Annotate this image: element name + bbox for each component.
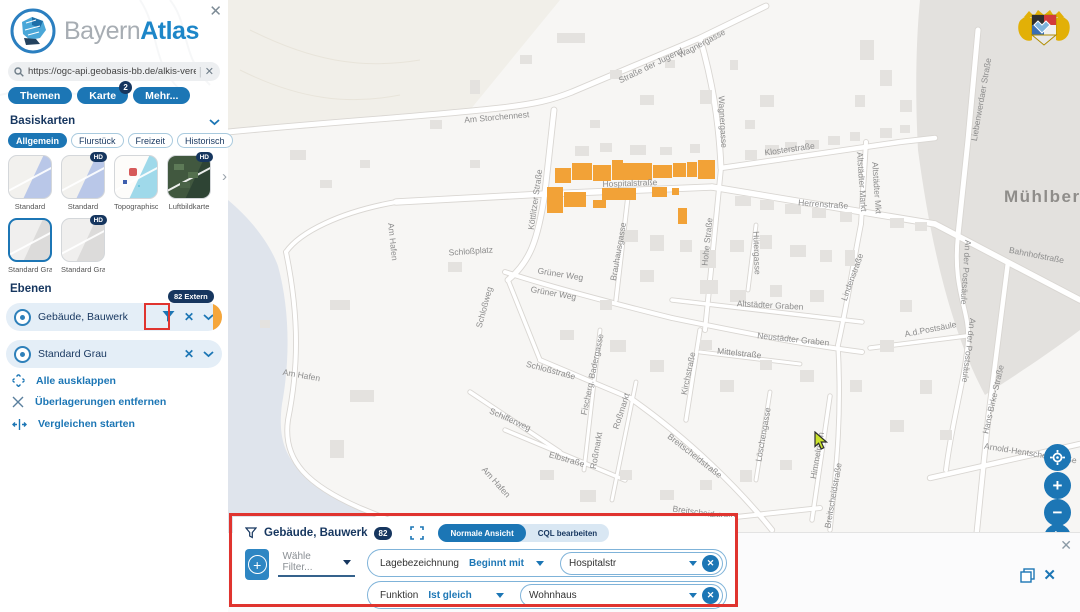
filter-value-input[interactable]: Wohnhaus ✕ (520, 584, 723, 607)
basemap-filter-historisch[interactable]: Historisch (177, 133, 233, 148)
basemap-filter-allgemein[interactable]: Allgemein (8, 133, 67, 148)
layer-drag-handle[interactable] (213, 304, 222, 330)
thumb-label: Luftbildkarte (167, 202, 211, 211)
basemap-thumb-standard[interactable]: Standard (8, 155, 52, 211)
expand-all-icon (12, 374, 25, 387)
pill-label: Historisch (185, 136, 225, 146)
extern-count-badge: 82 Extern (168, 290, 214, 303)
bayernatlas-window: Am StorchennestStraße der JugendWagnerga… (0, 0, 1080, 612)
operator-dropdown[interactable]: Beginnt mit (469, 558, 524, 569)
bavaria-coat-of-arms (1016, 7, 1072, 51)
thumb-label: Standard (8, 202, 52, 211)
thumb-label: Standard Grau (61, 265, 105, 274)
basemap-filter-flurstueck[interactable]: Flurstück (71, 133, 124, 148)
chevron-down-icon (343, 560, 351, 565)
layer-label: Standard Grau (38, 348, 175, 360)
chevron-down-icon[interactable] (689, 561, 697, 566)
basemap-thumb-standard-hd[interactable]: HD Standard (61, 155, 105, 211)
layer-filter-icon[interactable] (162, 310, 175, 324)
filter-panel: Gebäude, Bauwerk 82 Normale Ansicht CQL … (233, 517, 735, 605)
toggle-normale-ansicht[interactable]: Normale Ansicht (438, 524, 525, 542)
clear-search-icon[interactable]: ✕ (205, 65, 214, 78)
chevron-down-icon[interactable] (496, 593, 504, 598)
filter-value: Hospitalstr (569, 558, 616, 569)
geolocate-button[interactable] (1044, 444, 1071, 471)
operator-dropdown[interactable]: Ist gleich (428, 590, 471, 601)
thumbnails-next-icon[interactable]: › (222, 168, 227, 185)
sidebar: ✕ BayernAtlas | ✕ Themen (0, 0, 228, 612)
layer-row-standard-grau: Standard Grau ✕ (6, 340, 222, 368)
toggle-cql-bearbeiten[interactable]: CQL bearbeiten (526, 524, 609, 542)
plus-icon: + (253, 558, 261, 572)
tab-karte-badge: 2 (119, 81, 132, 94)
pill-label: Allgemein (16, 136, 59, 146)
compare-arrows-icon (12, 419, 27, 430)
close-icon (12, 396, 24, 408)
add-filter-button[interactable]: + (245, 549, 269, 580)
svg-text:Hütergasse: Hütergasse (751, 231, 763, 275)
minus-icon: − (1053, 503, 1063, 523)
basiskarten-heading: Basiskarten (10, 115, 75, 127)
basemap-thumb-standard-grau[interactable]: Standard Grau (8, 218, 52, 274)
filter-value-input[interactable]: Hospitalstr ✕ (560, 552, 723, 575)
layer-row-gebaeude-bauwerk: Gebäude, Bauwerk ✕ (6, 303, 222, 331)
app-title: BayernAtlas (64, 17, 199, 46)
filter-row-funktion: Funktion Ist gleich Wohnhaus ✕ (367, 581, 727, 609)
bayernatlas-logo (10, 8, 56, 54)
choose-filter-placeholder: Wähle Filter... (282, 551, 343, 573)
chevron-up-icon[interactable] (209, 118, 220, 126)
chevron-down-icon[interactable] (536, 561, 544, 566)
thumb-label: Standard Grau (8, 265, 52, 274)
tab-themen[interactable]: Themen (8, 87, 72, 104)
hd-badge: HD (196, 152, 213, 162)
view-toggle: Normale Ansicht CQL bearbeiten (438, 524, 609, 542)
chevron-down-icon[interactable] (689, 593, 697, 598)
hd-badge: HD (90, 152, 107, 162)
search-input[interactable] (28, 66, 196, 77)
ebenen-heading: Ebenen (10, 283, 52, 295)
filter-field-label: Funktion (380, 590, 418, 601)
bottom-bar-close-icon[interactable]: ✕ (1060, 537, 1072, 554)
tab-label: Mehr... (145, 90, 178, 102)
filter-panel-title: Gebäude, Bauwerk (264, 527, 368, 539)
remove-filter-button[interactable]: ✕ (702, 555, 719, 572)
zoom-out-button[interactable]: − (1044, 499, 1071, 526)
svg-text:Hospitalstraße: Hospitalstraße (602, 177, 657, 189)
pill-label: Freizeit (136, 136, 166, 146)
start-compare-link[interactable]: Vergleichen starten (12, 418, 135, 430)
tab-karte[interactable]: Karte 2 (77, 87, 128, 104)
place-label-muehlberg: Mühlberg (1004, 187, 1080, 206)
result-count-badge: 82 (374, 527, 393, 540)
basemap-thumb-standard-grau-hd[interactable]: HD Standard Grau (61, 218, 105, 274)
plus-icon: + (1053, 476, 1063, 496)
basemap-thumb-topographisch[interactable]: Topographisch (114, 155, 158, 211)
link-label: Überlagerungen entfernen (35, 396, 166, 408)
zoom-in-button[interactable]: + (1044, 472, 1071, 499)
filter-funnel-icon (245, 527, 257, 539)
filter-value: Wohnhaus (529, 590, 577, 601)
link-label: Alle ausklappen (36, 375, 116, 387)
layer-visibility-icon[interactable] (14, 346, 31, 363)
chevron-down-icon[interactable] (203, 350, 214, 358)
remove-layer-icon[interactable]: ✕ (184, 310, 194, 324)
link-label: Vergleichen starten (38, 418, 135, 430)
chevron-right-icon: › (222, 168, 227, 185)
remove-filter-button[interactable]: ✕ (702, 587, 719, 604)
close-panel-icon[interactable]: ✕ (1043, 566, 1056, 584)
search-separator: | (199, 66, 202, 78)
mouse-cursor (814, 431, 831, 450)
brand-light: Bayern (64, 17, 140, 45)
tab-mehr[interactable]: Mehr... (133, 87, 190, 104)
thumb-label: Standard (61, 202, 105, 211)
basemap-thumb-luftbildkarte[interactable]: HD Luftbildkarte (167, 155, 211, 211)
remove-overlays-link[interactable]: Überlagerungen entfernen (12, 396, 166, 408)
sidebar-close-icon[interactable]: ✕ (209, 2, 222, 20)
hd-badge: HD (90, 215, 107, 225)
basemap-filter-freizeit[interactable]: Freizeit (128, 133, 174, 148)
remove-layer-icon[interactable]: ✕ (184, 347, 194, 361)
brand-bold: Atlas (140, 17, 199, 45)
filter-field-label: Lagebezeichnung (380, 558, 459, 569)
pill-label: Flurstück (79, 136, 116, 146)
layer-visibility-icon[interactable] (14, 309, 31, 326)
detach-window-icon[interactable] (1020, 568, 1035, 583)
choose-filter-dropdown[interactable]: Wähle Filter... (278, 549, 355, 577)
tab-label: Themen (20, 90, 60, 102)
thumb-label: Topographisch (114, 202, 158, 211)
filter-row-lagebezeichnung: Lagebezeichnung Beginnt mit Hospitalstr … (367, 549, 727, 577)
search-icon (14, 67, 24, 77)
layer-label: Gebäude, Bauwerk (38, 311, 162, 323)
tab-label: Karte (89, 90, 116, 102)
search-bar: | ✕ (8, 62, 220, 81)
expand-all-link[interactable]: Alle ausklappen (12, 374, 116, 387)
fullscreen-icon[interactable] (410, 526, 424, 540)
